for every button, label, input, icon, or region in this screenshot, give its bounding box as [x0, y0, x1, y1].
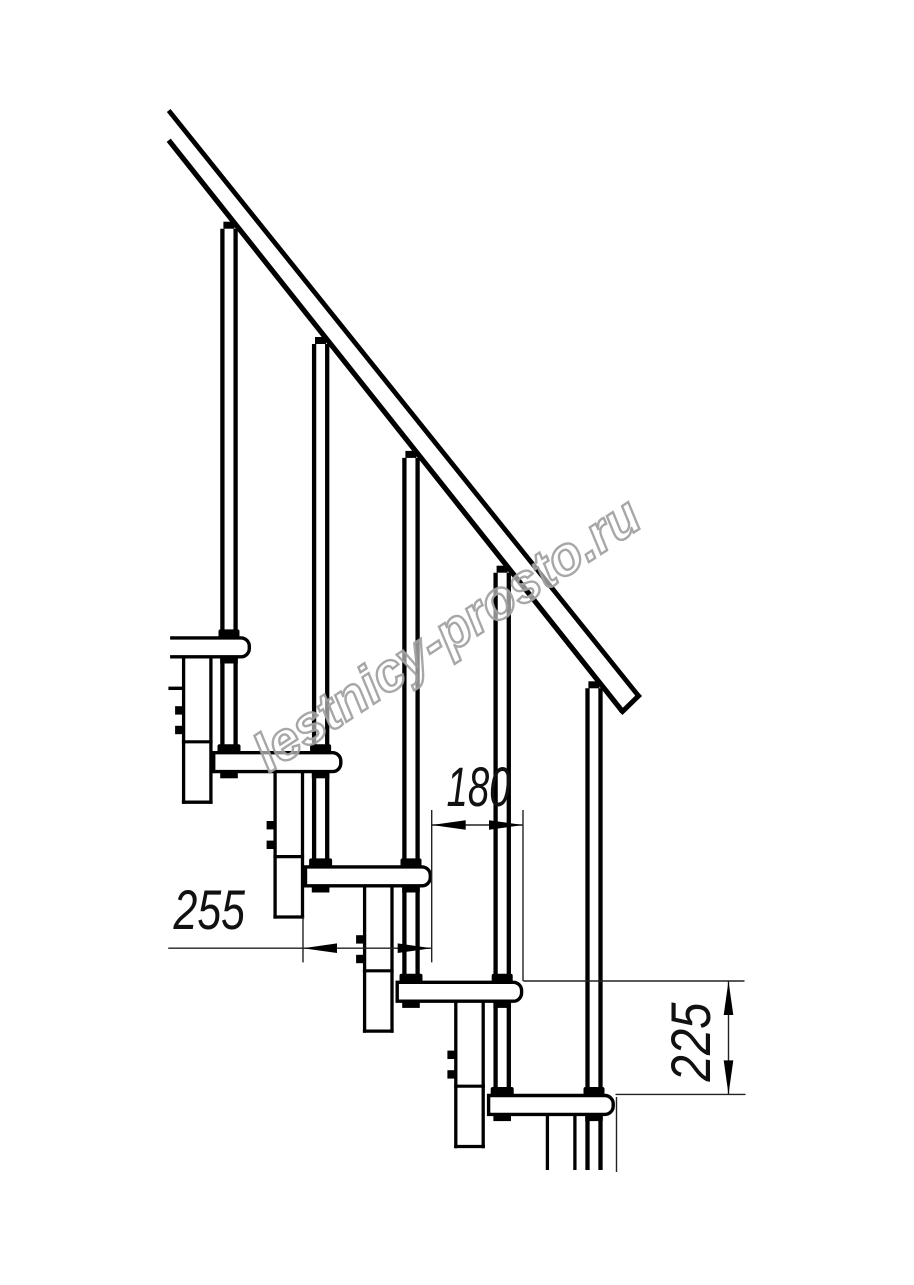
svg-text:180: 180	[447, 755, 511, 818]
svg-text:225: 225	[659, 1002, 722, 1083]
svg-text:255: 255	[173, 878, 246, 941]
